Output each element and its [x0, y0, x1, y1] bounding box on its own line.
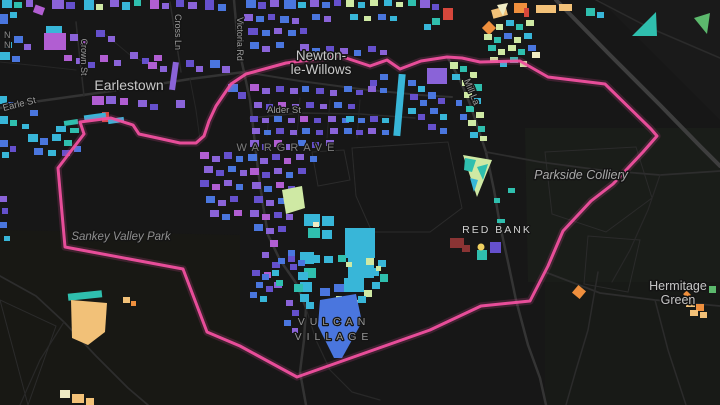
- building[interactable]: [286, 300, 293, 306]
- building[interactable]: [276, 86, 284, 92]
- building[interactable]: [254, 102, 262, 108]
- building[interactable]: [66, 2, 75, 9]
- building[interactable]: [390, 16, 397, 21]
- building[interactable]: [262, 46, 270, 52]
- building[interactable]: [514, 37, 521, 43]
- building[interactable]: [28, 134, 38, 142]
- building[interactable]: [72, 394, 84, 403]
- building[interactable]: [260, 158, 268, 164]
- building[interactable]: [334, 284, 344, 292]
- building[interactable]: [378, 14, 386, 20]
- building[interactable]: [268, 14, 275, 20]
- building[interactable]: [300, 116, 308, 122]
- building[interactable]: [330, 90, 337, 96]
- building[interactable]: [354, 50, 361, 56]
- building[interactable]: [44, 33, 66, 50]
- building[interactable]: [120, 98, 128, 105]
- building[interactable]: [338, 255, 346, 262]
- building[interactable]: [272, 270, 279, 276]
- building[interactable]: [222, 66, 230, 73]
- building[interactable]: [314, 118, 321, 123]
- building[interactable]: [478, 244, 485, 251]
- building[interactable]: [313, 222, 319, 227]
- building[interactable]: [10, 120, 17, 126]
- map-label-newton-line2: le-Willows: [291, 62, 352, 77]
- building[interactable]: [276, 128, 284, 134]
- building[interactable]: [2, 208, 8, 214]
- building[interactable]: [300, 294, 309, 302]
- building[interactable]: [266, 200, 274, 206]
- building[interactable]: [162, 3, 169, 9]
- building[interactable]: [176, 0, 184, 7]
- building[interactable]: [380, 74, 388, 80]
- map-label-red-bank: RED BANK: [462, 224, 532, 236]
- building[interactable]: [138, 100, 147, 107]
- building[interactable]: [420, 100, 427, 106]
- map-label-alder-st: Alder St: [267, 105, 301, 116]
- building[interactable]: [4, 236, 10, 241]
- building[interactable]: [262, 274, 269, 280]
- building[interactable]: [368, 46, 376, 52]
- building[interactable]: [258, 2, 266, 9]
- building[interactable]: [46, 26, 62, 34]
- building[interactable]: [154, 55, 162, 61]
- building[interactable]: [286, 214, 293, 220]
- building[interactable]: [298, 260, 305, 266]
- building[interactable]: [488, 45, 496, 51]
- building[interactable]: [322, 216, 334, 226]
- building[interactable]: [370, 80, 377, 86]
- building[interactable]: [238, 92, 246, 99]
- building[interactable]: [320, 288, 330, 296]
- building[interactable]: [230, 196, 238, 202]
- building[interactable]: [370, 0, 378, 6]
- building[interactable]: [290, 88, 298, 94]
- building[interactable]: [468, 120, 476, 126]
- building[interactable]: [274, 212, 282, 218]
- building[interactable]: [30, 110, 38, 116]
- map-label-sankey-valley-park: Sankey Valley Park: [71, 231, 172, 243]
- building[interactable]: [294, 284, 303, 292]
- building[interactable]: [96, 30, 105, 37]
- building[interactable]: [288, 118, 295, 123]
- building[interactable]: [130, 52, 138, 59]
- building[interactable]: [56, 126, 66, 132]
- building[interactable]: [380, 274, 388, 282]
- building[interactable]: [280, 16, 289, 23]
- building[interactable]: [286, 172, 293, 178]
- building[interactable]: [700, 312, 707, 318]
- building[interactable]: [218, 4, 226, 11]
- building[interactable]: [64, 140, 72, 146]
- building[interactable]: [264, 186, 272, 192]
- building[interactable]: [420, 0, 430, 8]
- building[interactable]: [0, 14, 8, 24]
- building[interactable]: [210, 60, 220, 68]
- map-label-hermitage: Hermitage: [649, 279, 707, 293]
- building[interactable]: [424, 24, 431, 30]
- building[interactable]: [504, 33, 512, 39]
- building[interactable]: [114, 60, 121, 66]
- building[interactable]: [350, 14, 358, 20]
- building[interactable]: [278, 258, 285, 264]
- building[interactable]: [518, 49, 525, 55]
- building[interactable]: [206, 196, 215, 203]
- building[interactable]: [272, 154, 280, 160]
- building[interactable]: [176, 100, 185, 108]
- building[interactable]: [368, 128, 376, 134]
- building[interactable]: [224, 180, 232, 186]
- building[interactable]: [380, 88, 387, 93]
- map-label-green: Green: [661, 293, 696, 307]
- building[interactable]: [106, 96, 116, 104]
- building[interactable]: [494, 37, 501, 43]
- building[interactable]: [0, 222, 7, 228]
- building[interactable]: [254, 196, 263, 203]
- building[interactable]: [524, 33, 532, 39]
- building[interactable]: [418, 86, 425, 92]
- building[interactable]: [274, 28, 282, 34]
- building[interactable]: [302, 128, 310, 134]
- building[interactable]: [462, 245, 470, 252]
- building[interactable]: [709, 286, 716, 293]
- building[interactable]: [440, 128, 447, 134]
- building[interactable]: [477, 250, 487, 260]
- building[interactable]: [316, 88, 324, 94]
- building[interactable]: [300, 28, 307, 34]
- building[interactable]: [70, 128, 79, 133]
- building[interactable]: [452, 74, 460, 80]
- building[interactable]: [346, 280, 355, 287]
- building[interactable]: [292, 18, 299, 24]
- building[interactable]: [296, 154, 304, 160]
- building[interactable]: [148, 62, 157, 69]
- building[interactable]: [346, 262, 352, 267]
- building[interactable]: [262, 118, 269, 123]
- building[interactable]: [484, 34, 492, 40]
- building[interactable]: [497, 219, 505, 223]
- building[interactable]: [224, 152, 232, 159]
- building[interactable]: [122, 2, 130, 10]
- building[interactable]: [108, 36, 115, 42]
- building[interactable]: [430, 108, 438, 114]
- building[interactable]: [443, 8, 453, 20]
- building[interactable]: [70, 34, 78, 41]
- building[interactable]: [2, 0, 12, 8]
- building[interactable]: [310, 0, 319, 7]
- building[interactable]: [34, 148, 43, 155]
- building[interactable]: [508, 45, 516, 51]
- building[interactable]: [248, 154, 257, 161]
- building[interactable]: [10, 146, 16, 152]
- building[interactable]: [466, 106, 474, 112]
- building[interactable]: [48, 150, 56, 156]
- building[interactable]: [212, 156, 220, 162]
- building[interactable]: [250, 168, 259, 175]
- building[interactable]: [288, 30, 296, 36]
- building[interactable]: [378, 260, 386, 267]
- building[interactable]: [696, 304, 704, 311]
- building[interactable]: [252, 270, 260, 276]
- building[interactable]: [428, 124, 436, 130]
- map-label-vulcan: VULCAN: [298, 316, 371, 328]
- map-label-victoria-rd: Victoria Rd: [235, 17, 245, 61]
- building[interactable]: [352, 256, 361, 263]
- building[interactable]: [24, 44, 31, 50]
- building[interactable]: [262, 172, 270, 178]
- building[interactable]: [370, 116, 378, 122]
- building[interactable]: [40, 138, 48, 145]
- building[interactable]: [52, 0, 64, 9]
- building[interactable]: [262, 30, 270, 36]
- building[interactable]: [408, 80, 416, 86]
- building[interactable]: [288, 256, 295, 262]
- building[interactable]: [92, 96, 104, 105]
- building[interactable]: [284, 0, 296, 9]
- building[interactable]: [64, 55, 72, 61]
- building[interactable]: [306, 302, 314, 309]
- building[interactable]: [236, 156, 243, 162]
- building[interactable]: [428, 92, 436, 99]
- building[interactable]: [382, 118, 389, 123]
- building[interactable]: [410, 94, 418, 100]
- building[interactable]: [690, 310, 698, 316]
- building[interactable]: [284, 158, 291, 164]
- building[interactable]: [310, 255, 320, 263]
- building[interactable]: [204, 166, 213, 173]
- building[interactable]: [478, 126, 485, 132]
- building[interactable]: [290, 130, 297, 135]
- building[interactable]: [252, 128, 260, 134]
- building[interactable]: [358, 2, 365, 8]
- building[interactable]: [345, 228, 375, 258]
- building[interactable]: [248, 28, 258, 35]
- building[interactable]: [496, 24, 503, 30]
- building[interactable]: [528, 45, 536, 51]
- building[interactable]: [532, 52, 540, 58]
- building[interactable]: [274, 168, 282, 174]
- building[interactable]: [52, 134, 61, 141]
- building[interactable]: [14, 36, 23, 43]
- building[interactable]: [346, 116, 354, 122]
- map-label-crown-st: Crown St: [79, 38, 89, 76]
- map-viewport[interactable]: EarlestownNewton-le-WillowsCrown StCross…: [0, 0, 720, 405]
- building[interactable]: [10, 12, 17, 18]
- building[interactable]: [480, 136, 487, 141]
- building[interactable]: [408, 108, 416, 114]
- building[interactable]: [524, 8, 529, 17]
- building[interactable]: [324, 256, 333, 263]
- building[interactable]: [470, 132, 478, 138]
- building[interactable]: [324, 16, 331, 22]
- building[interactable]: [188, 2, 197, 9]
- map-canvas[interactable]: EarlestownNewton-le-WillowsCrown StCross…: [0, 0, 720, 405]
- building[interactable]: [250, 292, 257, 298]
- building[interactable]: [222, 214, 230, 220]
- building[interactable]: [322, 2, 330, 8]
- building[interactable]: [376, 266, 381, 271]
- building[interactable]: [228, 166, 236, 172]
- building[interactable]: [262, 214, 270, 220]
- building[interactable]: [366, 258, 374, 265]
- building[interactable]: [344, 128, 352, 134]
- building[interactable]: [418, 114, 425, 120]
- building[interactable]: [142, 58, 149, 64]
- building[interactable]: [84, 0, 94, 10]
- building[interactable]: [460, 114, 467, 120]
- building[interactable]: [586, 8, 595, 16]
- building[interactable]: [150, 104, 158, 110]
- building[interactable]: [450, 62, 458, 69]
- building[interactable]: [498, 49, 505, 55]
- building[interactable]: [260, 296, 267, 302]
- building[interactable]: [234, 210, 242, 216]
- building[interactable]: [123, 297, 130, 303]
- building[interactable]: [134, 0, 141, 6]
- building[interactable]: [86, 398, 94, 405]
- building[interactable]: [250, 84, 259, 91]
- building[interactable]: [380, 50, 387, 55]
- building[interactable]: [396, 2, 403, 7]
- building[interactable]: [322, 230, 332, 239]
- building[interactable]: [205, 0, 214, 10]
- building[interactable]: [0, 140, 8, 147]
- map-label-village: VILLAGE: [295, 331, 374, 343]
- building[interactable]: [278, 226, 286, 232]
- building[interactable]: [2, 152, 9, 158]
- building[interactable]: [298, 272, 308, 280]
- building[interactable]: [597, 12, 604, 18]
- building[interactable]: [276, 42, 284, 48]
- building[interactable]: [160, 66, 167, 72]
- building[interactable]: [536, 5, 556, 13]
- building[interactable]: [196, 66, 203, 72]
- building[interactable]: [372, 282, 380, 289]
- building[interactable]: [250, 116, 258, 122]
- building[interactable]: [427, 68, 447, 84]
- building[interactable]: [110, 0, 119, 7]
- building[interactable]: [356, 130, 363, 135]
- building[interactable]: [356, 90, 363, 95]
- building[interactable]: [0, 116, 8, 124]
- building[interactable]: [262, 252, 269, 258]
- building[interactable]: [276, 280, 283, 286]
- building[interactable]: [358, 118, 365, 123]
- building[interactable]: [100, 55, 108, 62]
- building[interactable]: [508, 188, 515, 193]
- building[interactable]: [218, 200, 226, 206]
- building[interactable]: [382, 130, 389, 135]
- building[interactable]: [330, 128, 338, 134]
- building[interactable]: [60, 390, 70, 398]
- building[interactable]: [310, 156, 317, 162]
- building[interactable]: [320, 104, 327, 109]
- building[interactable]: [432, 18, 440, 25]
- building[interactable]: [131, 301, 136, 306]
- building[interactable]: [290, 264, 297, 270]
- building[interactable]: [252, 182, 261, 189]
- building[interactable]: [494, 198, 500, 203]
- building[interactable]: [298, 2, 306, 8]
- building[interactable]: [200, 152, 209, 159]
- building[interactable]: [440, 114, 447, 120]
- building[interactable]: [456, 100, 462, 106]
- building[interactable]: [316, 130, 323, 135]
- building[interactable]: [364, 16, 371, 21]
- building[interactable]: [490, 242, 501, 253]
- building[interactable]: [150, 0, 159, 9]
- building[interactable]: [559, 4, 572, 11]
- building[interactable]: [270, 240, 278, 247]
- building[interactable]: [210, 210, 219, 217]
- building[interactable]: [364, 290, 372, 297]
- building[interactable]: [506, 20, 514, 26]
- building[interactable]: [236, 184, 243, 190]
- building[interactable]: [476, 112, 484, 118]
- building[interactable]: [264, 130, 271, 135]
- building[interactable]: [284, 320, 291, 326]
- building[interactable]: [0, 196, 7, 202]
- building[interactable]: [0, 52, 10, 60]
- building[interactable]: [266, 228, 274, 234]
- building[interactable]: [186, 60, 194, 67]
- building[interactable]: [328, 116, 336, 122]
- building[interactable]: [250, 210, 259, 217]
- building[interactable]: [246, 0, 256, 8]
- building[interactable]: [212, 184, 220, 190]
- building[interactable]: [334, 0, 341, 6]
- building[interactable]: [256, 282, 263, 288]
- building[interactable]: [334, 102, 342, 108]
- building[interactable]: [256, 16, 264, 22]
- building[interactable]: [274, 116, 282, 122]
- building[interactable]: [312, 14, 320, 20]
- building[interactable]: [216, 170, 224, 176]
- building[interactable]: [254, 224, 263, 231]
- building[interactable]: [348, 104, 355, 109]
- building[interactable]: [266, 286, 273, 292]
- building[interactable]: [14, 2, 22, 8]
- building[interactable]: [308, 228, 320, 238]
- building[interactable]: [460, 66, 467, 72]
- building[interactable]: [516, 24, 523, 30]
- building[interactable]: [384, 0, 392, 6]
- building[interactable]: [240, 170, 247, 176]
- building[interactable]: [298, 168, 306, 174]
- building[interactable]: [306, 102, 314, 108]
- building[interactable]: [432, 4, 439, 10]
- building[interactable]: [250, 42, 259, 49]
- building[interactable]: [270, 0, 279, 7]
- building[interactable]: [526, 20, 534, 26]
- building[interactable]: [26, 0, 33, 7]
- building[interactable]: [450, 238, 464, 248]
- building[interactable]: [408, 0, 416, 6]
- building[interactable]: [368, 86, 376, 92]
- building[interactable]: [200, 180, 209, 187]
- building[interactable]: [346, 0, 354, 7]
- building[interactable]: [276, 182, 284, 188]
- building[interactable]: [358, 296, 366, 303]
- building[interactable]: [344, 86, 352, 92]
- building[interactable]: [96, 4, 103, 10]
- building[interactable]: [438, 98, 445, 104]
- building[interactable]: [12, 56, 20, 62]
- building[interactable]: [302, 86, 309, 92]
- building[interactable]: [288, 250, 295, 256]
- building[interactable]: [22, 124, 29, 129]
- building[interactable]: [262, 88, 270, 94]
